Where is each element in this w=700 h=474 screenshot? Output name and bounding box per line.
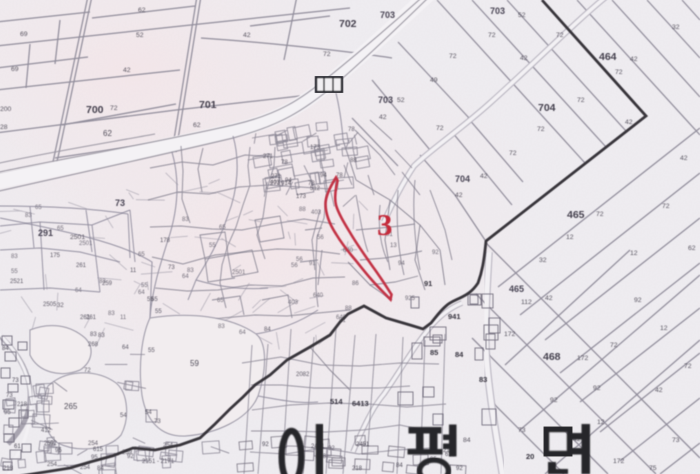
svg-text:42: 42 xyxy=(455,192,463,199)
svg-text:703: 703 xyxy=(380,10,395,20)
svg-text:64: 64 xyxy=(182,274,189,280)
svg-text:64: 64 xyxy=(75,288,82,294)
svg-text:72: 72 xyxy=(323,51,331,58)
svg-text:55: 55 xyxy=(155,309,162,315)
svg-text:72: 72 xyxy=(436,125,444,132)
svg-text:271: 271 xyxy=(270,181,281,187)
svg-text:64: 64 xyxy=(122,345,129,351)
svg-text:941: 941 xyxy=(448,312,461,321)
svg-text:218: 218 xyxy=(17,402,28,408)
svg-text:2505: 2505 xyxy=(43,302,57,308)
svg-text:465: 465 xyxy=(509,284,524,294)
svg-text:254: 254 xyxy=(47,462,58,468)
svg-text:92: 92 xyxy=(550,397,558,404)
svg-text:65: 65 xyxy=(138,252,145,258)
svg-text:95: 95 xyxy=(4,410,11,416)
svg-text:94: 94 xyxy=(398,261,405,267)
svg-text:92: 92 xyxy=(432,250,439,256)
svg-text:172: 172 xyxy=(613,458,625,465)
svg-text:172: 172 xyxy=(577,355,589,362)
svg-text:12: 12 xyxy=(566,234,574,241)
svg-text:42: 42 xyxy=(680,155,688,162)
svg-text:72: 72 xyxy=(84,368,91,374)
svg-text:42: 42 xyxy=(243,32,251,39)
svg-text:55: 55 xyxy=(209,243,216,249)
svg-text:83: 83 xyxy=(90,332,97,338)
svg-text:84: 84 xyxy=(396,463,403,469)
svg-text:88: 88 xyxy=(350,158,357,164)
svg-text:112: 112 xyxy=(521,299,532,306)
svg-text:72: 72 xyxy=(488,32,496,39)
svg-text:83: 83 xyxy=(218,324,225,330)
svg-text:84: 84 xyxy=(463,437,471,444)
svg-text:12: 12 xyxy=(630,250,638,257)
svg-text:62: 62 xyxy=(103,129,112,138)
svg-text:94: 94 xyxy=(320,173,327,179)
svg-text:261: 261 xyxy=(86,315,97,321)
svg-text:72: 72 xyxy=(509,150,517,157)
svg-text:85: 85 xyxy=(430,348,438,357)
svg-text:2501: 2501 xyxy=(70,234,85,241)
svg-text:701: 701 xyxy=(199,99,217,111)
svg-text:703: 703 xyxy=(490,6,505,16)
svg-text:704: 704 xyxy=(455,174,470,184)
svg-text:64: 64 xyxy=(239,330,246,336)
svg-text:200: 200 xyxy=(0,106,12,113)
svg-text:512: 512 xyxy=(310,186,321,192)
svg-text:28: 28 xyxy=(0,124,8,131)
svg-text:62: 62 xyxy=(193,122,201,129)
svg-text:55: 55 xyxy=(141,283,148,289)
svg-text:2521: 2521 xyxy=(10,279,24,285)
svg-text:42: 42 xyxy=(520,55,528,62)
svg-text:13: 13 xyxy=(390,243,397,249)
svg-text:83: 83 xyxy=(108,311,115,317)
svg-text:615: 615 xyxy=(93,447,104,453)
svg-text:72: 72 xyxy=(684,363,692,370)
svg-text:640: 640 xyxy=(313,293,324,299)
svg-text:95: 95 xyxy=(55,448,62,454)
svg-text:92: 92 xyxy=(634,297,642,304)
svg-text:72: 72 xyxy=(449,53,457,60)
svg-text:92: 92 xyxy=(456,466,463,472)
svg-text:52: 52 xyxy=(397,97,405,104)
svg-text:6413: 6413 xyxy=(352,399,369,408)
svg-text:72: 72 xyxy=(615,69,623,76)
svg-text:11: 11 xyxy=(120,315,127,321)
svg-text:259: 259 xyxy=(102,281,113,287)
svg-text:65: 65 xyxy=(35,205,42,211)
svg-text:84: 84 xyxy=(2,346,9,352)
svg-text:2082: 2082 xyxy=(296,372,310,378)
svg-text:42: 42 xyxy=(480,173,488,180)
svg-text:59: 59 xyxy=(190,359,199,368)
svg-text:261: 261 xyxy=(76,263,87,269)
svg-text:172: 172 xyxy=(504,331,516,338)
svg-text:83: 83 xyxy=(479,375,487,384)
svg-text:73: 73 xyxy=(168,265,175,271)
svg-text:11: 11 xyxy=(130,268,137,274)
svg-text:268: 268 xyxy=(88,342,99,348)
svg-text:3: 3 xyxy=(377,207,393,242)
svg-text:52: 52 xyxy=(136,32,144,39)
svg-text:78: 78 xyxy=(281,160,288,166)
svg-text:52: 52 xyxy=(518,12,526,19)
svg-text:92: 92 xyxy=(593,385,601,392)
svg-text:42: 42 xyxy=(625,119,633,126)
svg-text:173: 173 xyxy=(310,145,321,151)
svg-text:42: 42 xyxy=(379,114,387,121)
svg-text:271: 271 xyxy=(263,154,274,160)
svg-text:65: 65 xyxy=(219,225,226,231)
svg-text:88: 88 xyxy=(299,207,306,213)
svg-text:78: 78 xyxy=(348,127,355,133)
svg-text:83: 83 xyxy=(98,333,105,339)
svg-text:704: 704 xyxy=(538,102,556,114)
svg-text:32: 32 xyxy=(539,257,547,264)
svg-text:291: 291 xyxy=(38,228,53,238)
svg-text:12: 12 xyxy=(660,325,668,332)
svg-text:175: 175 xyxy=(50,253,61,259)
svg-text:20: 20 xyxy=(526,452,534,461)
svg-text:468: 468 xyxy=(543,351,561,363)
svg-text:73: 73 xyxy=(12,378,19,384)
svg-text:703: 703 xyxy=(378,95,393,105)
svg-text:42: 42 xyxy=(655,387,663,394)
svg-text:62: 62 xyxy=(688,245,696,252)
svg-text:464: 464 xyxy=(599,51,617,63)
svg-text:84: 84 xyxy=(455,350,464,359)
svg-text:700: 700 xyxy=(86,104,104,116)
svg-text:54: 54 xyxy=(120,413,127,419)
svg-text:12: 12 xyxy=(597,419,605,426)
svg-text:75: 75 xyxy=(649,465,657,472)
svg-text:2451: 2451 xyxy=(356,442,370,448)
svg-text:83: 83 xyxy=(11,254,18,260)
svg-text:514: 514 xyxy=(330,397,343,406)
svg-text:72: 72 xyxy=(662,203,670,210)
svg-text:56: 56 xyxy=(317,235,324,241)
svg-text:72: 72 xyxy=(110,105,118,112)
svg-text:54: 54 xyxy=(145,410,152,416)
svg-text:702: 702 xyxy=(339,18,357,30)
svg-text:412: 412 xyxy=(41,428,52,434)
svg-text:73: 73 xyxy=(672,437,680,444)
svg-text:42: 42 xyxy=(545,295,553,302)
svg-text:42: 42 xyxy=(123,67,131,74)
svg-text:49: 49 xyxy=(430,77,438,84)
svg-text:2151 - 2171: 2151 - 2171 xyxy=(142,459,175,465)
svg-text:72: 72 xyxy=(610,342,618,349)
svg-text:73: 73 xyxy=(6,393,13,399)
svg-text:92: 92 xyxy=(262,442,269,448)
svg-text:56: 56 xyxy=(291,263,298,269)
svg-text:32: 32 xyxy=(672,24,680,31)
svg-text:83: 83 xyxy=(182,217,189,223)
svg-text:55: 55 xyxy=(11,269,18,275)
svg-text:72: 72 xyxy=(577,97,585,104)
svg-text:84: 84 xyxy=(97,466,104,472)
svg-text:265: 265 xyxy=(64,402,78,411)
svg-text:254: 254 xyxy=(88,441,99,447)
svg-text:465: 465 xyxy=(567,209,585,221)
svg-text:55: 55 xyxy=(148,348,155,354)
svg-text:65: 65 xyxy=(57,226,64,232)
svg-text:61: 61 xyxy=(14,444,21,450)
svg-text:64: 64 xyxy=(138,290,145,296)
svg-text:178: 178 xyxy=(160,238,171,244)
svg-text:73: 73 xyxy=(154,419,161,425)
svg-text:62: 62 xyxy=(138,7,146,14)
svg-text:55: 55 xyxy=(147,297,154,303)
svg-text:73: 73 xyxy=(518,427,526,434)
svg-text:91: 91 xyxy=(309,261,316,267)
svg-text:218: 218 xyxy=(352,466,363,472)
svg-text:84: 84 xyxy=(264,327,271,333)
svg-text:92: 92 xyxy=(50,441,57,447)
svg-text:72: 72 xyxy=(596,211,604,218)
svg-text:72: 72 xyxy=(556,32,564,39)
svg-text:914: 914 xyxy=(281,181,292,187)
svg-text:42: 42 xyxy=(630,56,638,63)
svg-text:72: 72 xyxy=(537,126,545,133)
svg-text:32: 32 xyxy=(57,303,64,309)
svg-text:69: 69 xyxy=(20,31,28,38)
svg-text:271: 271 xyxy=(271,174,282,180)
svg-text:91: 91 xyxy=(424,279,432,288)
svg-text:69: 69 xyxy=(11,66,19,73)
svg-text:86: 86 xyxy=(352,281,359,287)
svg-text:173: 173 xyxy=(296,194,307,200)
svg-text:73: 73 xyxy=(115,198,125,208)
